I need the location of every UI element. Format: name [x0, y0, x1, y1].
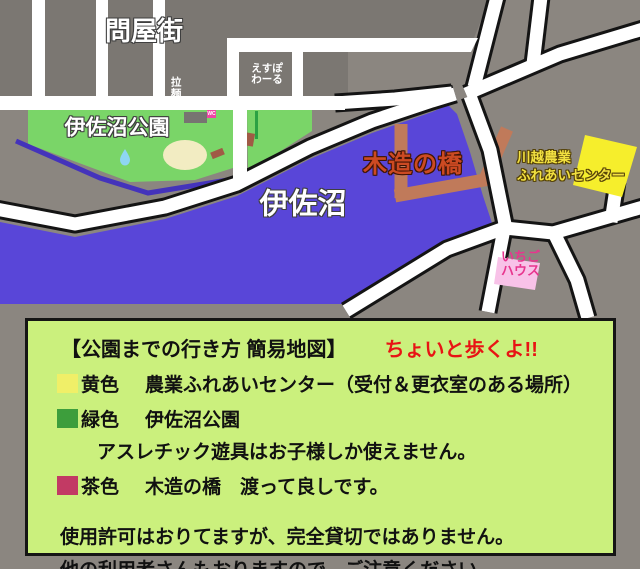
legend-title-note: ちょいと歩くよ!! [385, 339, 538, 361]
legend-item-text: 農業ふれあいセンター（受付＆更衣室のある場所） [145, 370, 582, 397]
city-block [165, 0, 489, 38]
city-block [303, 52, 348, 96]
ramen-label: 拉麺 [169, 77, 180, 100]
legend-box: 【公園までの行き方 簡易地図】ちょいと歩くよ!! 黄色 農業ふれあいセンター（受… [25, 318, 616, 556]
yellow-swatch [57, 374, 78, 393]
strawberry-label-line1: いちご [501, 250, 540, 264]
city-block [108, 0, 153, 96]
road-segment [153, 0, 165, 96]
brown-swatch [57, 476, 78, 495]
wc-sign: WC [207, 110, 216, 118]
legend-item-text: アスレチック遊具はお子様しか使えません。 [97, 437, 476, 464]
legend-item-text: 伊佐沼公園 [145, 405, 240, 432]
legend-item-text: 木造の橋 渡って良しです。 [145, 472, 389, 499]
legend-item-yellow: 黄色 農業ふれあいセンター（受付＆更衣室のある場所） [57, 370, 607, 397]
tree-line [255, 111, 258, 139]
farm-center-label-line1: 川越農業 [517, 149, 625, 167]
road-segment [32, 0, 45, 96]
bridge-label: 木造の橋 [363, 152, 463, 178]
city-block [0, 0, 32, 96]
strawberry-label-line2: ハウス [501, 264, 540, 278]
legend-item-green: 緑色 伊佐沼公園 [57, 405, 607, 432]
sandbox [163, 140, 207, 170]
pond-label: 伊佐沼 [259, 189, 346, 220]
park-building [184, 112, 207, 123]
espoir-label-line2: わーる [251, 75, 283, 86]
espoir-label: えすぽ わーる [251, 64, 283, 87]
city-block [45, 0, 96, 96]
park-label: 伊佐沼公園 [65, 118, 170, 141]
legend-color-label: 緑色 [81, 405, 119, 432]
road-segment [292, 52, 303, 96]
farm-center-label: 川越農業 ふれあいセンター [517, 149, 625, 184]
district-label: 問屋街 [105, 17, 183, 45]
farm-center-label-line2: ふれあいセンター [517, 167, 625, 185]
legend-footer-note: 使用許可はおりてますが、完全貸切ではありません。 [60, 522, 607, 549]
legend-item-brown: 茶色 木造の橋 渡って良しです。 [57, 472, 607, 499]
legend-color-label: 茶色 [81, 472, 119, 499]
legend-color-label: 黄色 [81, 370, 119, 397]
green-swatch [57, 409, 78, 428]
road-segment [227, 38, 478, 52]
legend-footer-note: 他の利用者さんもおりますので、ご注意ください。 [60, 555, 607, 569]
legend-title-row: 【公園までの行き方 簡易地図】ちょいと歩くよ!! [61, 333, 607, 362]
map-screenshot: 問屋街 えすぽ わーる 拉麺 伊佐沼公園 伊佐沼 木造の橋 川越農業 ふれあいセ… [0, 0, 640, 569]
legend-title: 【公園までの行き方 簡易地図】 [61, 339, 347, 361]
strawberry-house-label: いちご ハウス [501, 250, 540, 279]
legend-item-note: アスレチック遊具はお子様しか使えません。 [97, 437, 607, 464]
road-segment [233, 110, 247, 180]
road-segment [533, 0, 541, 64]
road-segment [96, 0, 108, 96]
